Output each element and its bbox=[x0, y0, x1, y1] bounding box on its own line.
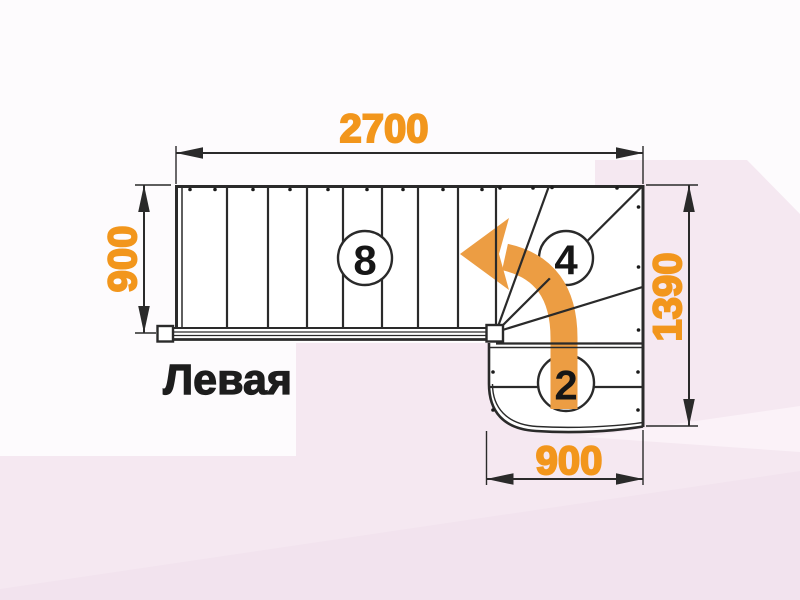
step-count-lower: 2 bbox=[554, 362, 577, 409]
dim-top-label: 2700 bbox=[340, 107, 429, 151]
newel-post-left bbox=[158, 326, 174, 342]
step-count-straight: 8 bbox=[353, 237, 376, 284]
step-count-winder: 4 bbox=[554, 237, 578, 284]
dim-bottom-label: 900 bbox=[536, 439, 603, 483]
dim-left-label: 900 bbox=[101, 226, 145, 293]
newel-post-pivot bbox=[487, 325, 504, 342]
stair-plan-page: 2700 900 1390 900 8 4 2 Левая bbox=[0, 0, 800, 600]
stair-plan-drawing: 2700 900 1390 900 8 4 2 Левая bbox=[0, 0, 800, 600]
title-label: Левая bbox=[163, 356, 292, 404]
dim-right-label: 1390 bbox=[646, 253, 690, 342]
